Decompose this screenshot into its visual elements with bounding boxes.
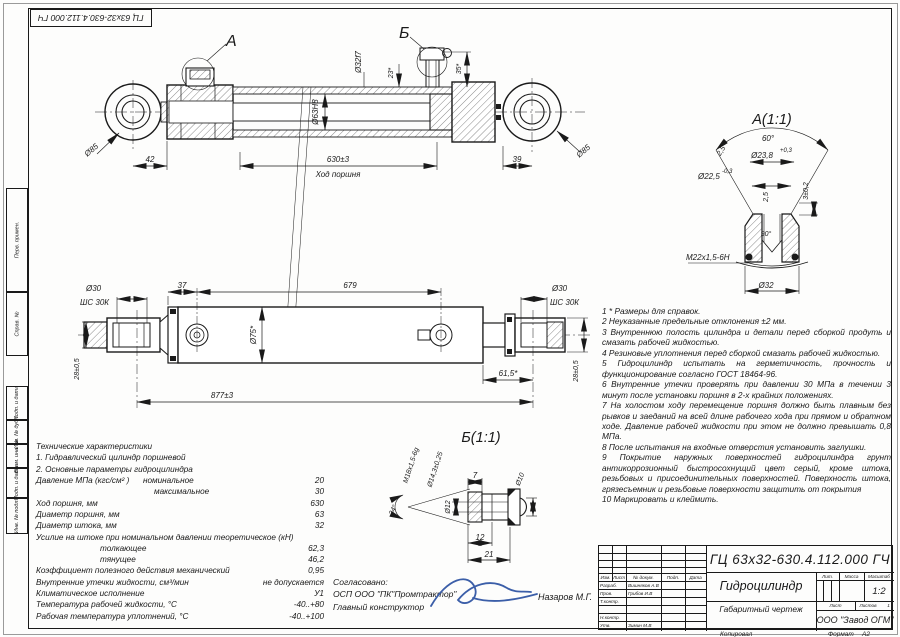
drawing-sheet: ГЦ 63х32-630.4.112.000 ГЧ Перв. примен. …	[0, 0, 900, 637]
dia-225-tol: -0,3	[722, 169, 733, 175]
note-5: 5 Гидроцилиндр испытать на герметичность…	[602, 358, 891, 379]
sheet-label: Лист	[816, 603, 855, 608]
dim-37: 37	[178, 281, 187, 290]
mass-label: Масса	[839, 574, 864, 579]
col-list: Лист	[612, 575, 626, 580]
dia-75: Ø75*	[249, 325, 258, 345]
spec-row: Коэффициент полезного действия механичес…	[36, 565, 324, 576]
dim-42: 42	[146, 155, 155, 164]
notes-block: 1 * Размеры для справок. 2 Неуказанные п…	[602, 306, 891, 505]
dim-3: 3±0,2	[803, 182, 810, 200]
dim-23: 23*	[388, 67, 395, 79]
dim-28-right: 28±0,5	[573, 360, 580, 382]
dim-12: 12	[476, 533, 485, 542]
title-block: Изм. Лист № докум. Подп. Дата Разраб. Ви…	[598, 545, 893, 630]
dia-10: Ø10	[515, 472, 527, 488]
shs-right: ШС 30К	[550, 298, 580, 307]
sheets-value: 1	[884, 603, 893, 608]
dim-630: 630±3	[327, 155, 350, 164]
scale-value: 1:2	[864, 582, 894, 600]
dia-12: Ø12	[445, 500, 452, 514]
spec-row: Ход поршня, мм630	[36, 498, 324, 509]
note-6: 6 Внутренние утечки проверять при давлен…	[602, 379, 891, 400]
angle-60: 60°	[762, 134, 775, 143]
signer-name: Назаров М.Г.	[538, 592, 592, 602]
tech-specs: Технические характеристики 1. Гидравличе…	[36, 441, 324, 622]
role-tkontr: Т.контр.	[600, 599, 619, 604]
specs-title: Технические характеристики	[36, 441, 324, 452]
angle-24: 24°	[387, 503, 399, 517]
dia85-left: Ø85	[82, 141, 101, 159]
spec-row: Усилие на штоке при номинальном давлении…	[36, 532, 324, 543]
dim-7: 7	[473, 471, 478, 480]
dim-679: 679	[343, 281, 357, 290]
dia-63h8: Ø63Н8	[311, 99, 320, 126]
kopiroval-label: Копировал	[720, 631, 752, 637]
middle-view: Ø30 ШС 30К Ø30 ШС 30К 37 679 Ø75* 28±0,5…	[74, 281, 592, 408]
sheets-label: Листов	[855, 603, 881, 608]
spec-row: Диаметр штока, мм32	[36, 520, 324, 531]
col-podp: Подп.	[661, 575, 685, 580]
detail-b-title: Б(1:1)	[461, 430, 500, 446]
spec-row: Диаметр поршня, мм63	[36, 509, 324, 520]
dia-238-tol: +0,3	[780, 148, 793, 154]
chamfer-25: 2,5	[716, 145, 728, 158]
thread-m22: М22х1,5-6Н	[686, 253, 730, 262]
note-4: 4 Резиновые уплотнения перед сборкой сма…	[602, 348, 891, 358]
spec-row: Климатическое исполнениеУ1	[36, 588, 324, 599]
specs-line2: 2. Основные параметры гидроцилиндра	[36, 464, 324, 475]
spec-row: Внутренние утечки жидкости, см³/минне до…	[36, 577, 324, 588]
specs-rows: Давление МПа (кгс/см² ) номинальное20 ма…	[36, 475, 324, 622]
note-9: 9 Покрытие наружных поверхностей гидроци…	[602, 452, 891, 494]
note-2: 2 Неуказанные предельные отклонения ±2 м…	[602, 316, 891, 326]
lit-label: Лит.	[816, 574, 839, 579]
specs-line1: 1. Гидравлический цилиндр поршневой	[36, 452, 324, 463]
doc-number: ГЦ 63х32-630.4.112.000 ГЧ	[706, 546, 894, 572]
spec-row: Температура рабочей жидкости, °С-40..+80	[36, 599, 324, 610]
spec-row: максимальное30	[36, 486, 324, 497]
dim-877: 877±3	[211, 391, 234, 400]
dia30-right: Ø30	[551, 284, 568, 293]
col-ndoc: № докум.	[626, 575, 661, 580]
angle-90: 90°	[761, 230, 772, 238]
thread-m18: М18х1,5-6g	[403, 447, 421, 484]
role-razrab: Разраб.	[600, 583, 617, 588]
spec-row: Давление МПа (кгс/см² ) номинальное20	[36, 475, 324, 486]
dia-225: Ø22,5	[697, 172, 720, 181]
note-1: 1 * Размеры для справок.	[602, 306, 891, 316]
note-7: 7 На холостом ходу перемещение поршня до…	[602, 400, 891, 442]
format-label: Формат	[828, 631, 854, 637]
name-prov: Грибов И.В	[628, 591, 652, 596]
role-utv: Утв.	[600, 623, 611, 628]
company-name: ООО "Завод ОГМ"	[816, 610, 894, 629]
name-utv: Зимин М.В	[628, 623, 652, 628]
dia-32: Ø32	[757, 281, 774, 290]
detail-a-title: А(1:1)	[751, 112, 792, 128]
dim-21: 21	[484, 550, 494, 559]
dia85-right: Ø85	[574, 142, 593, 160]
dia-143: Ø14,3±0,25	[426, 451, 444, 489]
dim-615: 61,5*	[499, 369, 519, 378]
stroke-label: Ход поршня	[315, 170, 362, 179]
role-nkontr: Н.контр.	[600, 615, 620, 620]
signature	[425, 568, 545, 620]
shs-left: ШС 30К	[80, 298, 110, 307]
dim-28-left: 28±0,5	[74, 358, 81, 380]
note-3: 3 Внутреннюю полость цилиндра и детали п…	[602, 327, 891, 348]
spec-row: тянущее46,2	[36, 554, 324, 565]
callout-a-label: А	[225, 33, 237, 50]
doc-type: Габаритный чертеж	[706, 602, 816, 616]
format-value: А2	[862, 631, 870, 637]
callout-b-label: Б	[399, 25, 409, 42]
dim-39: 39	[513, 155, 522, 164]
name-razrab: Вишняков А.В	[628, 583, 659, 588]
note-8: 8 После испытания на входные отверстия у…	[602, 442, 891, 452]
depth-25: 2,5	[763, 192, 770, 203]
note-10: 10 Маркировать и клеймить.	[602, 494, 891, 504]
dia-238: Ø23,8	[750, 151, 773, 160]
product-name: Гидроцилиндр	[706, 574, 816, 598]
role-prov: Пров.	[600, 591, 612, 596]
scale-label: Масштаб	[864, 574, 894, 579]
dim-35: 35*	[456, 63, 463, 74]
spec-row: Рабочая температура уплотнений, °С-40..+…	[36, 611, 324, 622]
col-izm: Изм.	[599, 575, 612, 580]
detail-a-view: А(1:1) 60° 2,5 Ø23,8 +0,3 Ø22,5 -0,3 2,5…	[686, 112, 828, 294]
spec-row: толкающее62,3	[36, 543, 324, 554]
dia30-left: Ø30	[85, 284, 102, 293]
col-data: Дата	[685, 575, 706, 580]
dia-32f7: Ø32f7	[354, 51, 363, 74]
detail-b-view: Б(1:1) М18х1,5-6g Ø14,3±0,25 24° 7 Ø10 Ø…	[387, 430, 537, 563]
